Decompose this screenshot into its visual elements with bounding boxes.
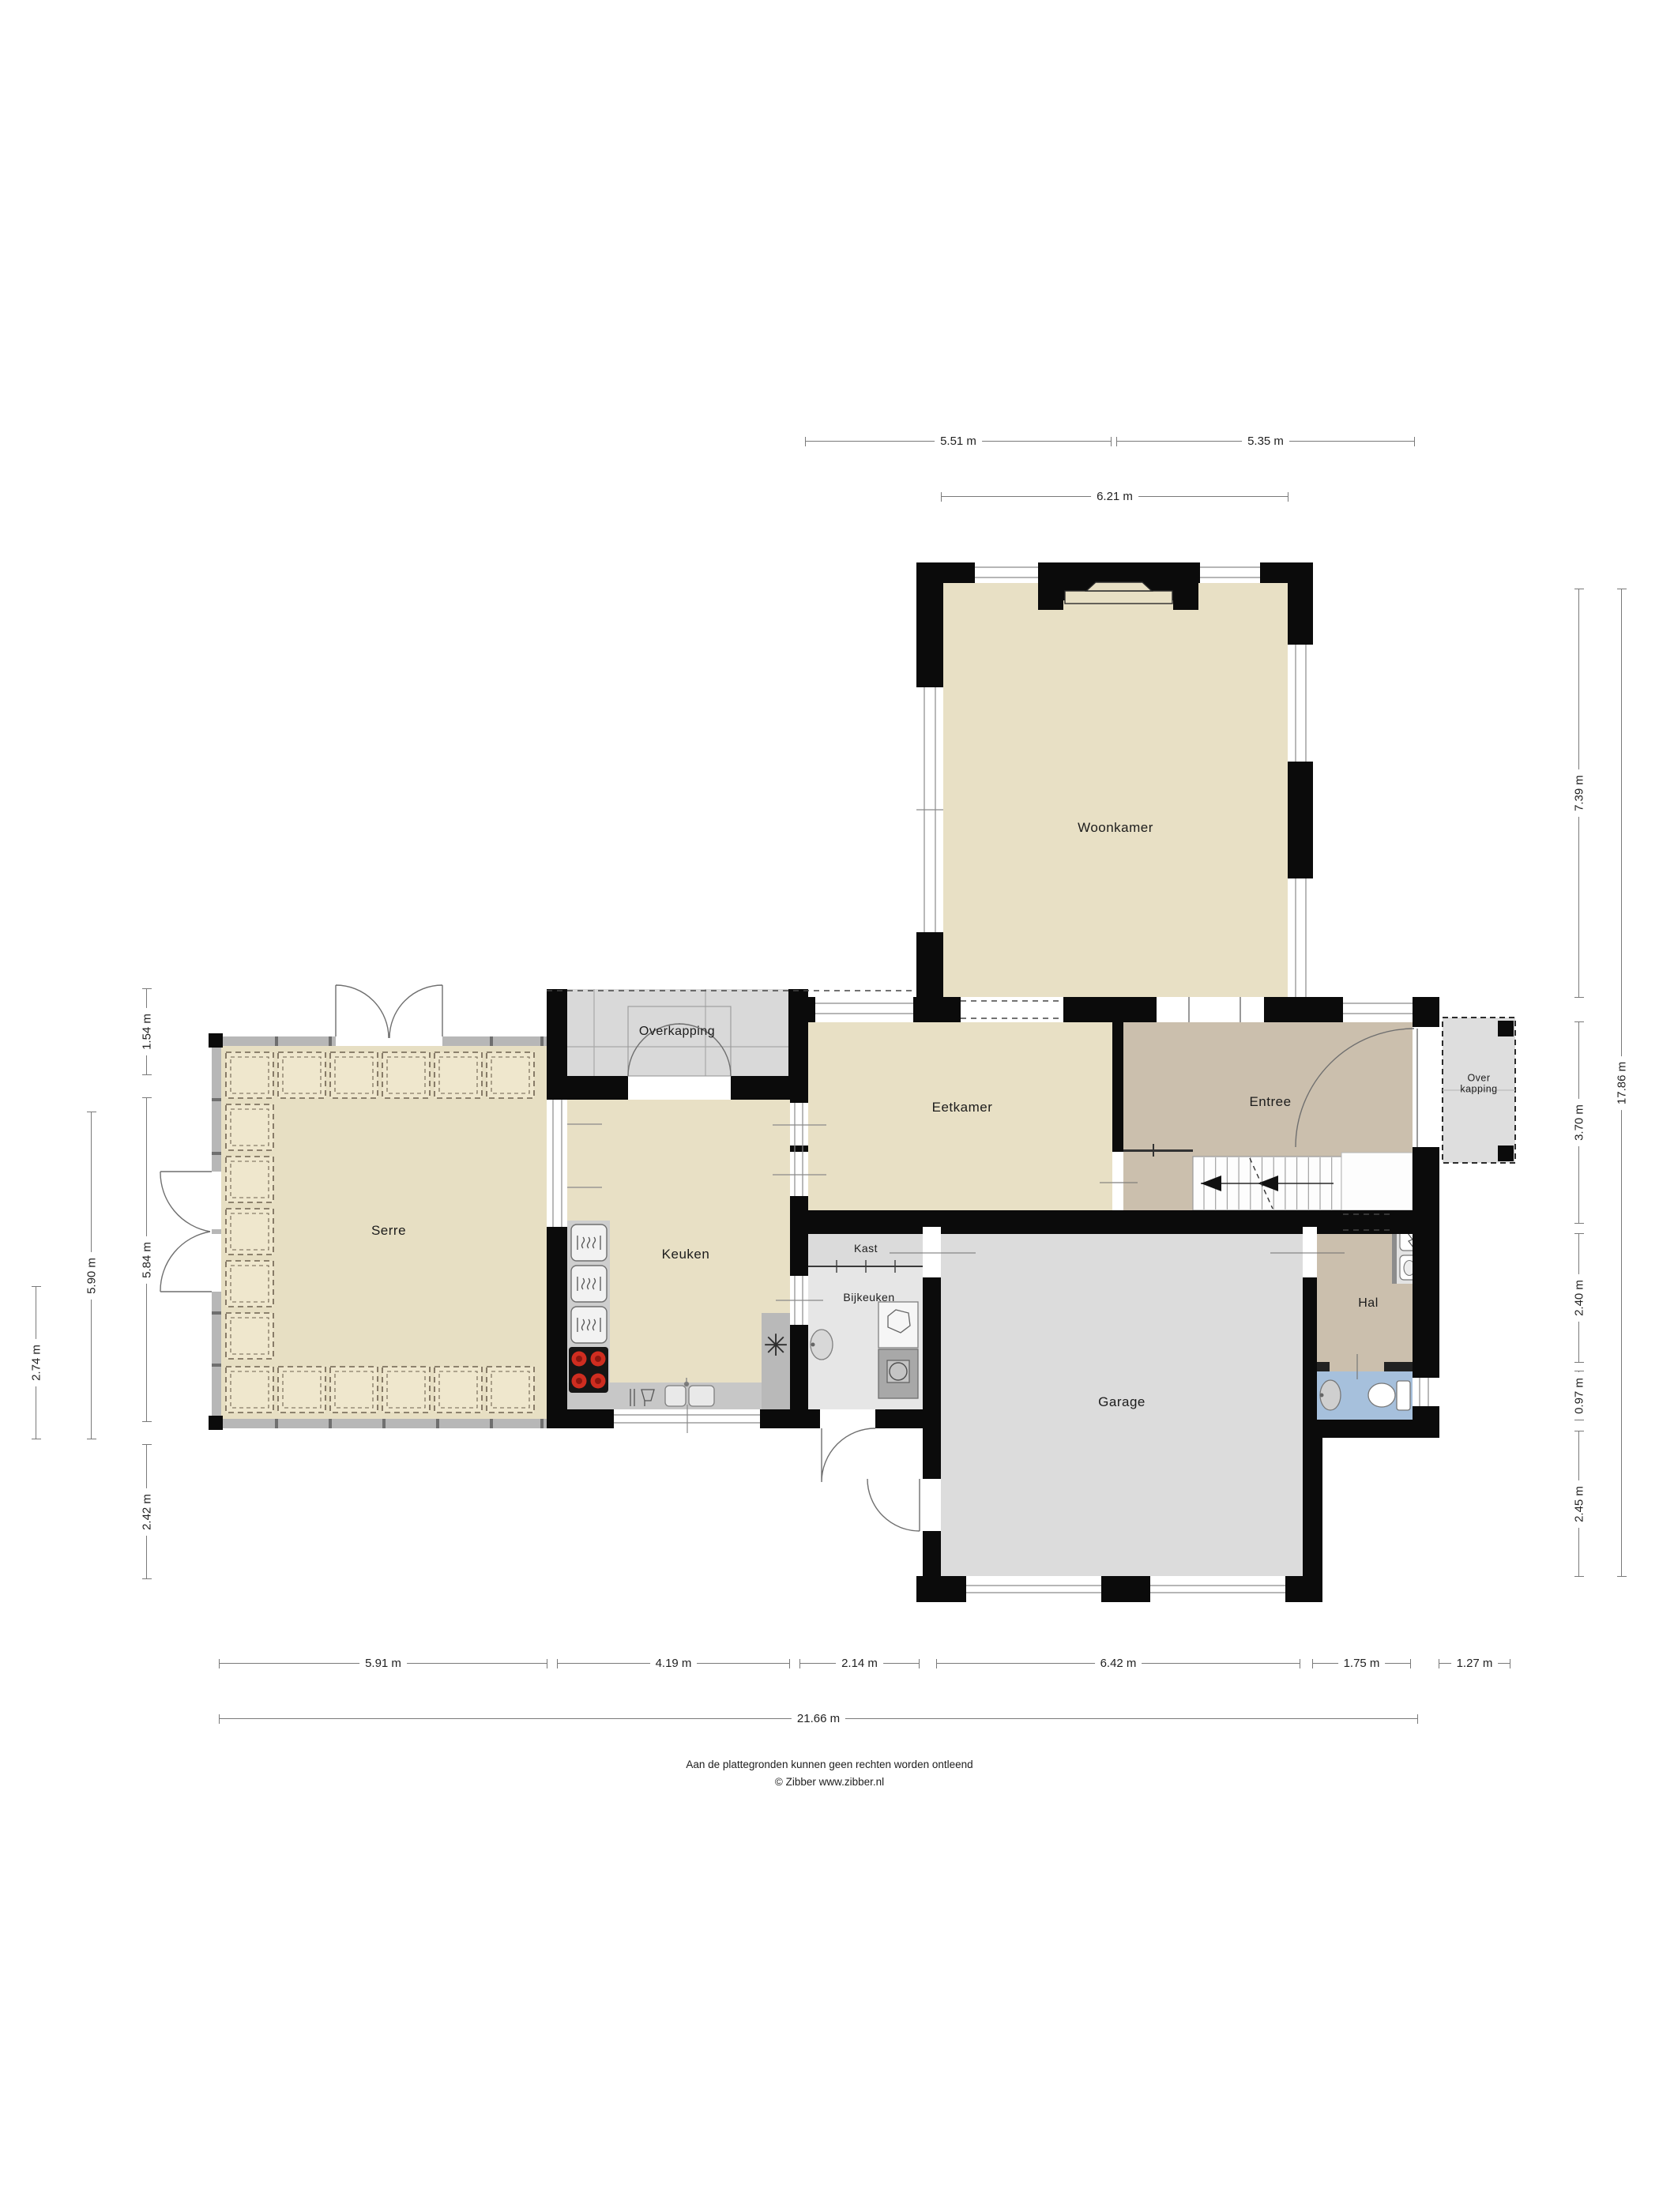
room-label-hal: Hal [1358, 1296, 1379, 1311]
dim-label: 2.74 m [30, 1339, 43, 1386]
room-label-keuken: Keuken [662, 1247, 710, 1262]
dim-label: 6.42 m [1095, 1657, 1142, 1670]
dim-label: 5.51 m [935, 434, 982, 448]
dim-label: 2.45 m [1573, 1480, 1586, 1528]
dim-left-2-74: 2.74 m [36, 1287, 36, 1439]
staircase [1193, 1153, 1413, 1210]
dim-label: 0.97 m [1573, 1372, 1586, 1420]
dim-right-0-97: 0.97 m [1578, 1371, 1579, 1420]
dim-left-1-54: 1.54 m [146, 989, 147, 1074]
dim-bottom-5-91: 5.91 m [220, 1663, 547, 1664]
dim-right-17-86: 17.86 m [1621, 589, 1622, 1576]
dim-label: 5.91 m [359, 1657, 407, 1670]
overkapping-right-line2: kapping [1460, 1084, 1497, 1095]
footer-disclaimer: Aan de plattegronden kunnen geen rechten… [0, 1759, 1659, 1770]
dim-left-5-90: 5.90 m [91, 1112, 92, 1439]
dim-bottom-4-19: 4.19 m [558, 1663, 789, 1664]
dim-bottom-1-75: 1.75 m [1313, 1663, 1410, 1664]
room-label-overkapping: Overkapping [639, 1025, 715, 1039]
dim-right-2-40: 2.40 m [1578, 1234, 1579, 1362]
dim-label: 17.86 m [1616, 1055, 1629, 1109]
toilet-bowl-icon [1368, 1383, 1395, 1407]
room-label-bijkeuken: Bijkeuken [843, 1291, 894, 1303]
dim-bottom-6-42: 6.42 m [937, 1663, 1300, 1664]
dim-label: 5.90 m [85, 1252, 99, 1300]
dim-top-6-21: 6.21 m [942, 496, 1288, 497]
dim-label: 2.40 m [1573, 1274, 1586, 1322]
floor-plan-page: ✳ [0, 0, 1659, 2212]
overkapping-right-line1: Over [1467, 1073, 1490, 1084]
room-label-kast: Kast [854, 1242, 878, 1255]
room-label-garage: Garage [1098, 1394, 1145, 1410]
dim-label: 6.21 m [1091, 490, 1138, 503]
room-label-serre: Serre [371, 1223, 406, 1239]
toilet-tank-icon [1397, 1381, 1410, 1410]
dim-label: 2.14 m [836, 1657, 883, 1670]
dim-label: 1.75 m [1338, 1657, 1386, 1670]
dim-top-5-51: 5.51 m [806, 441, 1111, 442]
dim-label: 1.54 m [141, 1008, 154, 1055]
dim-label: 5.35 m [1242, 434, 1289, 448]
room-label-overkapping-right: Over kapping [1460, 1073, 1497, 1096]
dim-bottom-total: 21.66 m [220, 1718, 1417, 1719]
dim-label: 4.19 m [650, 1657, 698, 1670]
dim-label: 7.39 m [1573, 769, 1586, 817]
footer-credit: © Zibber www.zibber.nl [0, 1776, 1659, 1788]
dim-right-7-39: 7.39 m [1578, 589, 1579, 997]
dim-label: 2.42 m [141, 1488, 154, 1536]
dryer-icon [878, 1302, 918, 1348]
floor-plan-drawing: ✳ [0, 0, 1659, 2212]
freezer-icon: ✳ [763, 1330, 788, 1363]
dim-right-3-70: 3.70 m [1578, 1022, 1579, 1223]
dim-left-5-84: 5.84 m [146, 1098, 147, 1421]
dim-bottom-1-27: 1.27 m [1439, 1663, 1510, 1664]
dim-bottom-2-14: 2.14 m [800, 1663, 919, 1664]
room-label-eetkamer: Eetkamer [932, 1100, 993, 1115]
dim-right-2-45: 2.45 m [1578, 1431, 1579, 1576]
dim-left-2-42: 2.42 m [146, 1445, 147, 1578]
dim-label: 3.70 m [1573, 1099, 1586, 1146]
dim-label: 1.27 m [1451, 1657, 1499, 1670]
room-label-entree: Entree [1249, 1094, 1291, 1110]
dim-label: 21.66 m [792, 1712, 845, 1725]
room-label-woonkamer: Woonkamer [1078, 820, 1153, 836]
dim-top-5-35: 5.35 m [1117, 441, 1414, 442]
dim-label: 5.84 m [141, 1236, 154, 1284]
